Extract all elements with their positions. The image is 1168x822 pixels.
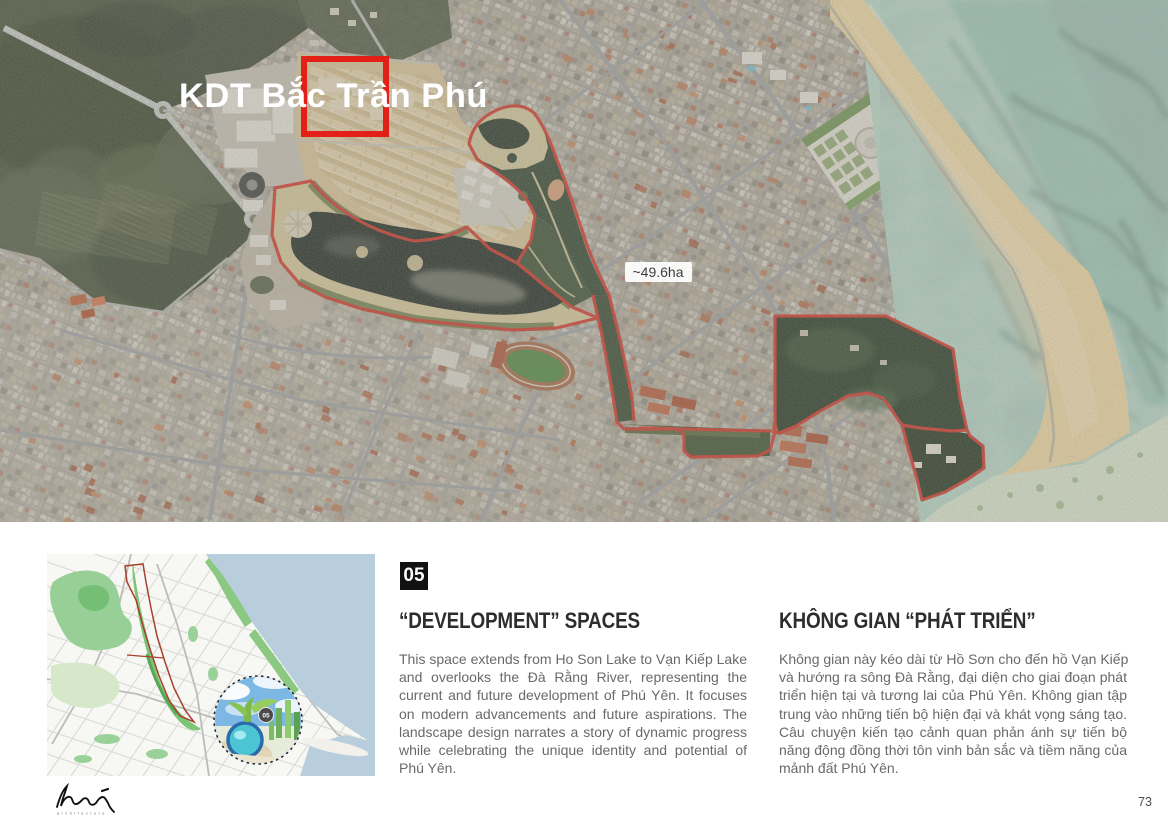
svg-text:05: 05 xyxy=(262,713,270,720)
svg-text:KDT Bắc Trần Phú: KDT Bắc Trần Phú xyxy=(179,75,488,115)
svg-text:architecture: architecture xyxy=(57,812,107,816)
svg-text:~49.6ha: ~49.6ha xyxy=(633,264,684,280)
